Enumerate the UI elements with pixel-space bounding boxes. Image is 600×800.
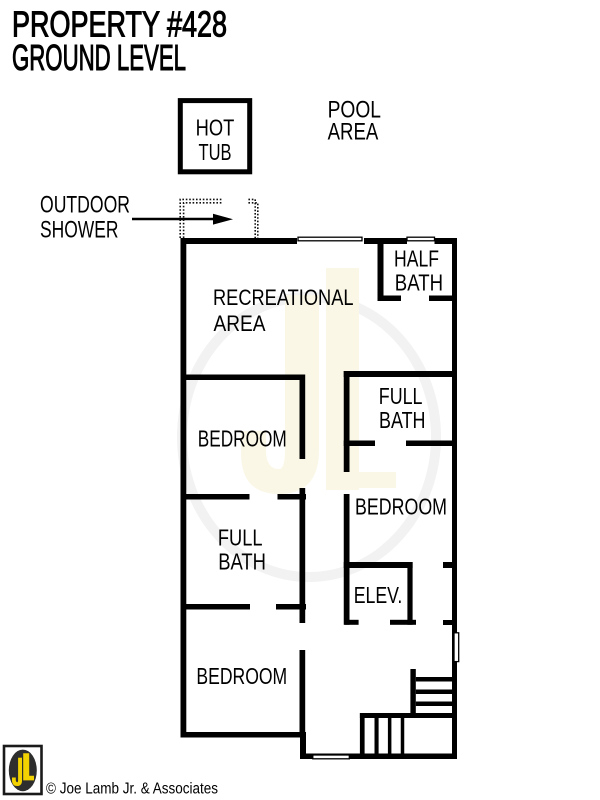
svg-text:OUTDOOR: OUTDOOR: [40, 192, 130, 219]
svg-text:FULL: FULL: [379, 383, 423, 409]
svg-text:HALF: HALF: [394, 246, 439, 272]
svg-text:BATH: BATH: [379, 407, 426, 433]
svg-text:BEDROOM: BEDROOM: [355, 493, 447, 519]
svg-text:BEDROOM: BEDROOM: [196, 663, 287, 689]
svg-text:GROUND LEVEL: GROUND LEVEL: [12, 37, 186, 78]
svg-text:AREA: AREA: [328, 119, 379, 146]
svg-text:BATH: BATH: [395, 270, 443, 296]
svg-text:HOT: HOT: [196, 114, 235, 140]
svg-text:FULL: FULL: [218, 524, 263, 550]
svg-text:RECREATIONAL: RECREATIONAL: [213, 285, 354, 310]
svg-text:TUB: TUB: [199, 139, 232, 165]
svg-text:ELEV.: ELEV.: [354, 582, 403, 608]
svg-text:AREA: AREA: [214, 311, 266, 336]
svg-text:BATH: BATH: [218, 548, 266, 574]
svg-text:© Joe Lamb Jr. & Associates: © Joe Lamb Jr. & Associates: [46, 781, 218, 798]
svg-text:SHOWER: SHOWER: [40, 217, 119, 244]
svg-text:BEDROOM: BEDROOM: [198, 426, 287, 452]
